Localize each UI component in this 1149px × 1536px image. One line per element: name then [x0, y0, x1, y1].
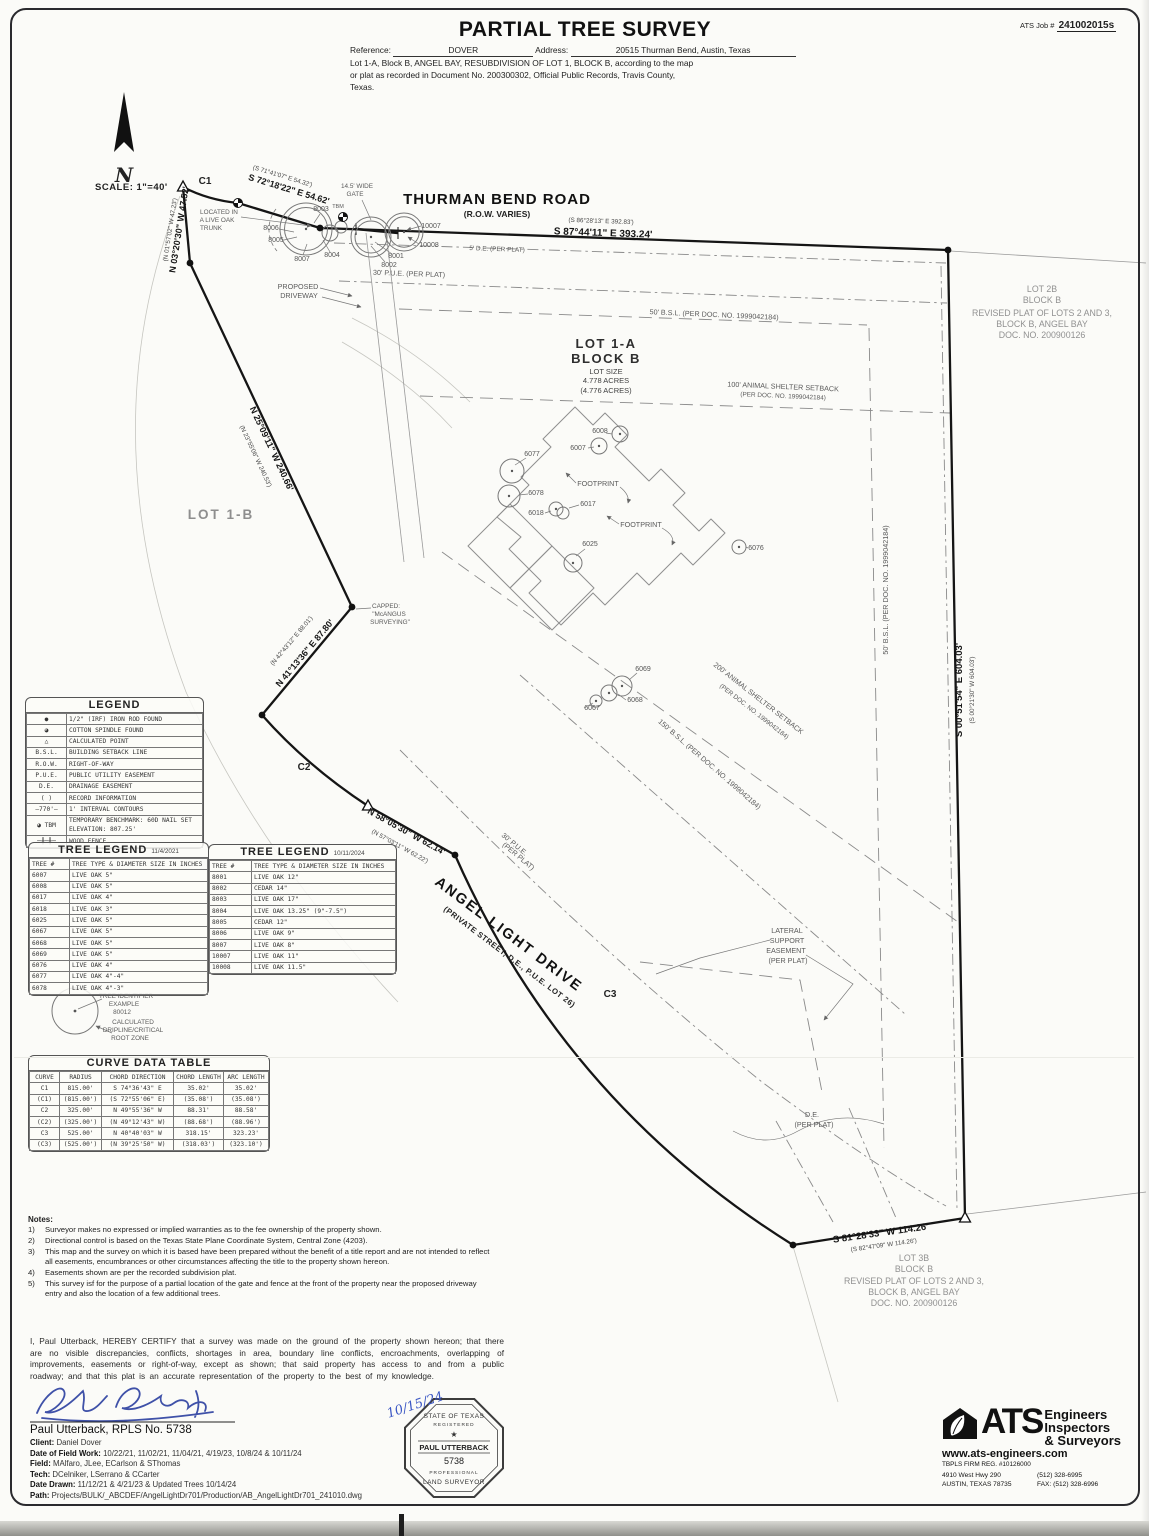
legend-rows: ●1/2" (IRF) IRON ROD FOUND◕COTTON SPINDL… [27, 714, 203, 848]
scan-fold-line [14, 1057, 1134, 1058]
tree-legend-title: TREE LEGEND [240, 846, 329, 858]
tree-legend-title: TREE LEGEND [58, 844, 147, 856]
seal-number: 5738 [444, 1456, 464, 1466]
table-cell: △ [27, 736, 67, 747]
table-cell: LIVE OAK 5" [70, 870, 208, 881]
table-row: ◕COTTON SPINDLE FOUND [27, 725, 203, 736]
table-cell: N 49°55'36" W [102, 1105, 174, 1116]
table-cell: DRAINAGE EASEMENT [67, 781, 203, 792]
curve-data-table: CURVE DATA TABLE CURVERADIUSCHORD DIRECT… [28, 1055, 270, 1152]
table-cell: 8004 [210, 906, 252, 917]
table-row: C1815.00'S 74°36'43" E35.02'35.02' [30, 1083, 269, 1094]
table-cell: 8003 [210, 894, 252, 905]
table-cell: (N 49°12'43" W) [102, 1117, 174, 1128]
table-cell: 6017 [30, 892, 70, 903]
table-cell: LIVE OAK 3" [70, 904, 208, 915]
table-row: 8007LIVE OAK 8" [210, 940, 396, 951]
table-cell: 525.00' [60, 1128, 102, 1139]
drawn-label: Date Drawn: [30, 1480, 76, 1489]
table-row: TREE #TREE TYPE & DIAMETER SIZE IN INCHE… [30, 859, 208, 870]
table-row: 10008LIVE OAK 11.5" [210, 962, 396, 973]
table-cell: (88.96') [224, 1117, 269, 1128]
table-cell: TEMPORARY BENCHMARK: 60D NAIL SET ELEVAT… [67, 815, 203, 836]
table-cell: TREE TYPE & DIAMETER SIZE IN INCHES [70, 859, 208, 870]
table-row: △CALCULATED POINT [27, 736, 203, 747]
scan-artifact [399, 1514, 404, 1536]
table-cell: BUILDING SETBACK LINE [67, 747, 203, 758]
table-cell: (815.00') [60, 1094, 102, 1105]
seal-registered: REGISTERED [433, 1422, 474, 1428]
table-cell: ARC LENGTH [224, 1072, 269, 1083]
table-cell: LIVE OAK 4"-4" [70, 971, 208, 982]
table-cell: 10008 [210, 962, 252, 973]
tree-legend-2021: TREE LEGEND 11/4/2021 TREE #TREE TYPE & … [28, 842, 209, 996]
table-row: 5)This survey isf for the purpose of a p… [28, 1279, 494, 1300]
table-cell: CHORD LENGTH [174, 1072, 224, 1083]
curve-table-rows: C1815.00'S 74°36'43" E35.02'35.02'(C1)(8… [30, 1083, 269, 1151]
table-row: C3525.00'N 40°40'03" W318.15'323.23' [30, 1128, 269, 1139]
table-row: D.E.DRAINAGE EASEMENT [27, 781, 203, 792]
table-row: 8004LIVE OAK 13.25" (9"-7.5") [210, 906, 396, 917]
field-label: Field: [30, 1459, 51, 1468]
table-cell: 10007 [210, 951, 252, 962]
field-value: MAlfaro, JLee, ECarlson & SThomas [53, 1459, 180, 1468]
table-cell: COTTON SPINDLE FOUND [67, 725, 203, 736]
tree-legend-date: 10/11/2024 [334, 850, 365, 857]
table-row: 6068LIVE OAK 5" [30, 938, 208, 949]
table-row: CURVERADIUSCHORD DIRECTIONCHORD LENGTHAR… [30, 1072, 269, 1083]
table-cell: 1' INTERVAL CONTOURS [67, 804, 203, 815]
seal-star-icon: ★ [450, 1430, 457, 1439]
table-cell: LIVE OAK 5" [70, 915, 208, 926]
legal-description: Lot 1-A, Block B, ANGEL BAY, RESUBDIVISI… [350, 57, 830, 69]
table-cell: 8001 [210, 872, 252, 883]
ats-registration: TBPLS FIRM REG. #10126000 [942, 1461, 1142, 1468]
seal-state: STATE OF TEXAS [424, 1413, 485, 1420]
table-row: 8006LIVE OAK 9" [210, 928, 396, 939]
table-row: 6025LIVE OAK 5" [30, 915, 208, 926]
fieldwork-label: Date of Field Work: [30, 1449, 101, 1458]
table-cell: CEDAR 14" [252, 883, 396, 894]
table-cell: ● [27, 714, 67, 725]
table-row: ◕ TBMTEMPORARY BENCHMARK: 60D NAIL SET E… [27, 815, 203, 836]
tree-legend-headers: TREE #TREE TYPE & DIAMETER SIZE IN INCHE… [210, 861, 396, 872]
client-value: Daniel Dover [56, 1438, 101, 1447]
tree-legend-headers: TREE #TREE TYPE & DIAMETER SIZE IN INCHE… [30, 859, 208, 870]
reference-label: Reference: [350, 45, 391, 55]
table-cell: 3) [28, 1247, 45, 1268]
table-cell: S 74°36'43" E [102, 1083, 174, 1094]
table-row: ●1/2" (IRF) IRON ROD FOUND [27, 714, 203, 725]
table-cell: R.O.W. [27, 759, 67, 770]
drawn-value: 11/12/21 & 4/21/23 & Updated Trees 10/14… [78, 1480, 237, 1489]
table-cell: 6076 [30, 960, 70, 971]
table-cell: (318.03') [174, 1139, 224, 1150]
curve-table-title: CURVE DATA TABLE [29, 1056, 269, 1071]
table-cell: 35.02' [224, 1083, 269, 1094]
table-cell: —770'— [27, 804, 67, 815]
table-cell: LIVE OAK 9" [252, 928, 396, 939]
table-cell: 6007 [30, 870, 70, 881]
table-row: B.S.L.BUILDING SETBACK LINE [27, 747, 203, 758]
table-row: (C1)(815.00')(S 72°55'06" E)(35.08')(35.… [30, 1094, 269, 1105]
table-cell: LIVE OAK 11" [252, 951, 396, 962]
ats-url: www.ats-engineers.com [942, 1448, 1142, 1460]
table-row: 8001LIVE OAK 12" [210, 872, 396, 883]
table-row: 6067LIVE OAK 5" [30, 926, 208, 937]
table-row: 2)Directional control is based on the Te… [28, 1236, 494, 1247]
table-row: (C3)(525.00')(N 39°25'50" W)(318.03')(32… [30, 1139, 269, 1150]
table-cell: 6018 [30, 904, 70, 915]
table-row: —770'—1' INTERVAL CONTOURS [27, 804, 203, 815]
notes-title: Notes: [28, 1215, 494, 1224]
table-row: 6077LIVE OAK 4"-4" [30, 971, 208, 982]
table-cell: TREE # [210, 861, 252, 872]
table-cell: ◕ [27, 725, 67, 736]
footer-info: Client: Daniel Dover Date of Field Work:… [30, 1438, 410, 1502]
table-row: 6008LIVE OAK 5" [30, 881, 208, 892]
table-cell: 325.00' [60, 1105, 102, 1116]
table-cell: (35.08') [174, 1094, 224, 1105]
table-cell: P.U.E. [27, 770, 67, 781]
table-cell: 4) [28, 1268, 45, 1279]
surveyor-name: Paul Utterback, RPLS No. 5738 [30, 1424, 192, 1436]
table-cell: (C2) [30, 1117, 60, 1128]
survey-sheet: N SCALE: 1"=40' THURMAN BEND ROAD (R.O.W… [0, 0, 1149, 1536]
table-cell: 6067 [30, 926, 70, 937]
table-cell: C2 [30, 1105, 60, 1116]
table-cell: CEDAR 12" [252, 917, 396, 928]
scanner-edge [0, 1521, 1149, 1536]
tree-legend-rows: 8001LIVE OAK 12"8002CEDAR 14"8003LIVE OA… [210, 872, 396, 974]
table-cell: 318.15' [174, 1128, 224, 1139]
table-row: 8003LIVE OAK 17" [210, 894, 396, 905]
table-row: 8002CEDAR 14" [210, 883, 396, 894]
table-row: 6069LIVE OAK 5" [30, 949, 208, 960]
table-cell: TREE # [30, 859, 70, 870]
notes-section: Notes: 1)Surveyor makes no expressed or … [28, 1215, 494, 1300]
table-row: (C2)(325.00')(N 49°12'43" W)(88.68')(88.… [30, 1117, 269, 1128]
ats-address: AUSTIN, TEXAS 78735 [942, 1481, 1037, 1490]
legal-description: Texas. [350, 81, 830, 93]
table-cell: D.E. [27, 781, 67, 792]
table-cell: 815.00' [60, 1083, 102, 1094]
table-cell: ◕ TBM [27, 815, 67, 836]
table-cell: 8006 [210, 928, 252, 939]
table-cell: This survey isf for the purpose of a par… [45, 1279, 494, 1300]
table-cell: 35.02' [174, 1083, 224, 1094]
table-cell: 8005 [210, 917, 252, 928]
table-row: P.U.E.PUBLIC UTILITY EASEMENT [27, 770, 203, 781]
table-cell: LIVE OAK 12" [252, 872, 396, 883]
table-cell: B.S.L. [27, 747, 67, 758]
table-cell: (N 39°25'50" W) [102, 1139, 174, 1150]
table-cell: RIGHT-OF-WAY [67, 759, 203, 770]
table-row: C2325.00'N 49°55'36" W88.31'88.58' [30, 1105, 269, 1116]
legal-description: or plat as recorded in Document No. 2003… [350, 69, 830, 81]
table-row: 4)Easements shown are per the recorded s… [28, 1268, 494, 1279]
table-cell: TREE TYPE & DIAMETER SIZE IN INCHES [252, 861, 396, 872]
table-cell: LIVE OAK 5" [70, 881, 208, 892]
table-cell: CALCULATED POINT [67, 736, 203, 747]
page-title: PARTIAL TREE SURVEY [400, 18, 770, 42]
table-cell: CHORD DIRECTION [102, 1072, 174, 1083]
table-cell: (323.10') [224, 1139, 269, 1150]
reference-value: DOVER [393, 44, 533, 57]
table-cell: Directional control is based on the Texa… [45, 1236, 494, 1247]
table-cell: (C1) [30, 1094, 60, 1105]
curve-table-headers: CURVERADIUSCHORD DIRECTIONCHORD LENGTHAR… [30, 1072, 269, 1083]
table-cell: 2) [28, 1236, 45, 1247]
table-cell: 88.31' [174, 1105, 224, 1116]
table-cell: C3 [30, 1128, 60, 1139]
seal-name: PAUL UTTERBACK [419, 1443, 489, 1452]
table-cell: This map and the survey on which it is b… [45, 1247, 494, 1268]
ats-name: ATS [981, 1407, 1042, 1437]
fieldwork-value: 10/22/21, 11/02/21, 11/04/21, 4/19/23, 1… [103, 1449, 302, 1458]
client-label: Client: [30, 1438, 54, 1447]
table-cell: 6078 [30, 983, 70, 994]
ats-house-icon [942, 1407, 978, 1441]
table-row: TREE #TREE TYPE & DIAMETER SIZE IN INCHE… [210, 861, 396, 872]
table-cell: 6025 [30, 915, 70, 926]
notes-items: 1)Surveyor makes no expressed or implied… [28, 1225, 494, 1300]
table-cell: LIVE OAK 17" [252, 894, 396, 905]
ats-fax: FAX: (512) 328-6996 [1037, 1481, 1098, 1490]
table-row: 1)Surveyor makes no expressed or implied… [28, 1225, 494, 1236]
table-cell: 6068 [30, 938, 70, 949]
table-cell: N 40°40'03" W [102, 1128, 174, 1139]
ats-logo-block: ATS Engineers Inspectors & Surveyors www… [942, 1407, 1142, 1489]
path-value: Projects/BULK/_ABCDEF/AngelLightDr701/Pr… [52, 1491, 362, 1500]
table-cell: LIVE OAK 8" [252, 940, 396, 951]
job-label: ATS Job # [1020, 21, 1054, 30]
table-row: 6078LIVE OAK 4"-3" [30, 983, 208, 994]
table-cell: 6008 [30, 881, 70, 892]
legend-box: LEGEND ●1/2" (IRF) IRON ROD FOUND◕COTTON… [25, 697, 204, 849]
table-row: 6017LIVE OAK 4" [30, 892, 208, 903]
table-cell: 6069 [30, 949, 70, 960]
table-row: 8005CEDAR 12" [210, 917, 396, 928]
table-cell: LIVE OAK 11.5" [252, 962, 396, 973]
table-cell: LIVE OAK 5" [70, 926, 208, 937]
table-cell: PUBLIC UTILITY EASEMENT [67, 770, 203, 781]
table-cell: LIVE OAK 5" [70, 949, 208, 960]
table-cell: Easements shown are per the recorded sub… [45, 1268, 494, 1279]
table-cell: 8007 [210, 940, 252, 951]
path-label: Path: [30, 1491, 50, 1500]
table-cell: ( ) [27, 793, 67, 804]
tech-value: DCelniker, LSerrano & CCarter [52, 1470, 159, 1479]
job-number-block: ATS Job # 241002015s [1020, 20, 1138, 31]
table-row: 6076LIVE OAK 4" [30, 960, 208, 971]
table-cell: LIVE OAK 4"-3" [70, 983, 208, 994]
ats-address: 4910 West Hwy 290 [942, 1472, 1037, 1481]
table-row: 3)This map and the survey on which it is… [28, 1247, 494, 1268]
tree-legend-rows: 6007LIVE OAK 5"6008LIVE OAK 5"6017LIVE O… [30, 870, 208, 994]
table-cell: (35.08') [224, 1094, 269, 1105]
address-value: 20515 Thurman Bend, Austin, Texas [571, 44, 796, 57]
table-cell: 1/2" (IRF) IRON ROD FOUND [67, 714, 203, 725]
scan-edge-shadow [1141, 0, 1149, 1536]
job-number: 241002015s [1057, 20, 1117, 32]
table-cell: 5) [28, 1279, 45, 1300]
tree-legend-2024: TREE LEGEND 10/11/2024 TREE #TREE TYPE &… [208, 844, 397, 975]
reference-block: Reference: DOVER Address: 20515 Thurman … [350, 44, 830, 93]
table-row: 6007LIVE OAK 5" [30, 870, 208, 881]
table-cell: 6077 [30, 971, 70, 982]
table-cell: (88.68') [174, 1117, 224, 1128]
table-cell: 1) [28, 1225, 45, 1236]
table-cell: (S 72°55'06" E) [102, 1094, 174, 1105]
table-cell: (525.00') [60, 1139, 102, 1150]
table-cell: Surveyor makes no expressed or implied w… [45, 1225, 494, 1236]
certification-text: I, Paul Utterback, HEREBY CERTIFY that a… [30, 1336, 504, 1382]
table-cell: C1 [30, 1083, 60, 1094]
tree-legend-date: 11/4/2021 [151, 848, 179, 855]
legend-title: LEGEND [26, 698, 203, 713]
table-cell: LIVE OAK 4" [70, 960, 208, 971]
table-cell: (C3) [30, 1139, 60, 1150]
table-cell: 323.23' [224, 1128, 269, 1139]
table-cell: LIVE OAK 5" [70, 938, 208, 949]
seal-surveyor: LAND SURVEYOR [423, 1479, 485, 1486]
seal-professional: PROFESSIONAL [429, 1470, 478, 1476]
ats-phone: (512) 328-6995 [1037, 1472, 1098, 1481]
address-label: Address: [535, 45, 568, 55]
table-cell: CURVE [30, 1072, 60, 1083]
table-cell: (325.00') [60, 1117, 102, 1128]
table-cell: RADIUS [60, 1072, 102, 1083]
table-cell: RECORD INFORMATION [67, 793, 203, 804]
ats-tagline: & Surveyors [1044, 1434, 1121, 1447]
table-cell: 8002 [210, 883, 252, 894]
tech-label: Tech: [30, 1470, 50, 1479]
table-cell: LIVE OAK 13.25" (9"-7.5") [252, 906, 396, 917]
table-row: R.O.W.RIGHT-OF-WAY [27, 759, 203, 770]
table-row: ( )RECORD INFORMATION [27, 793, 203, 804]
table-row: 6018LIVE OAK 3" [30, 904, 208, 915]
table-row: 10007LIVE OAK 11" [210, 951, 396, 962]
table-cell: LIVE OAK 4" [70, 892, 208, 903]
table-cell: 88.58' [224, 1105, 269, 1116]
